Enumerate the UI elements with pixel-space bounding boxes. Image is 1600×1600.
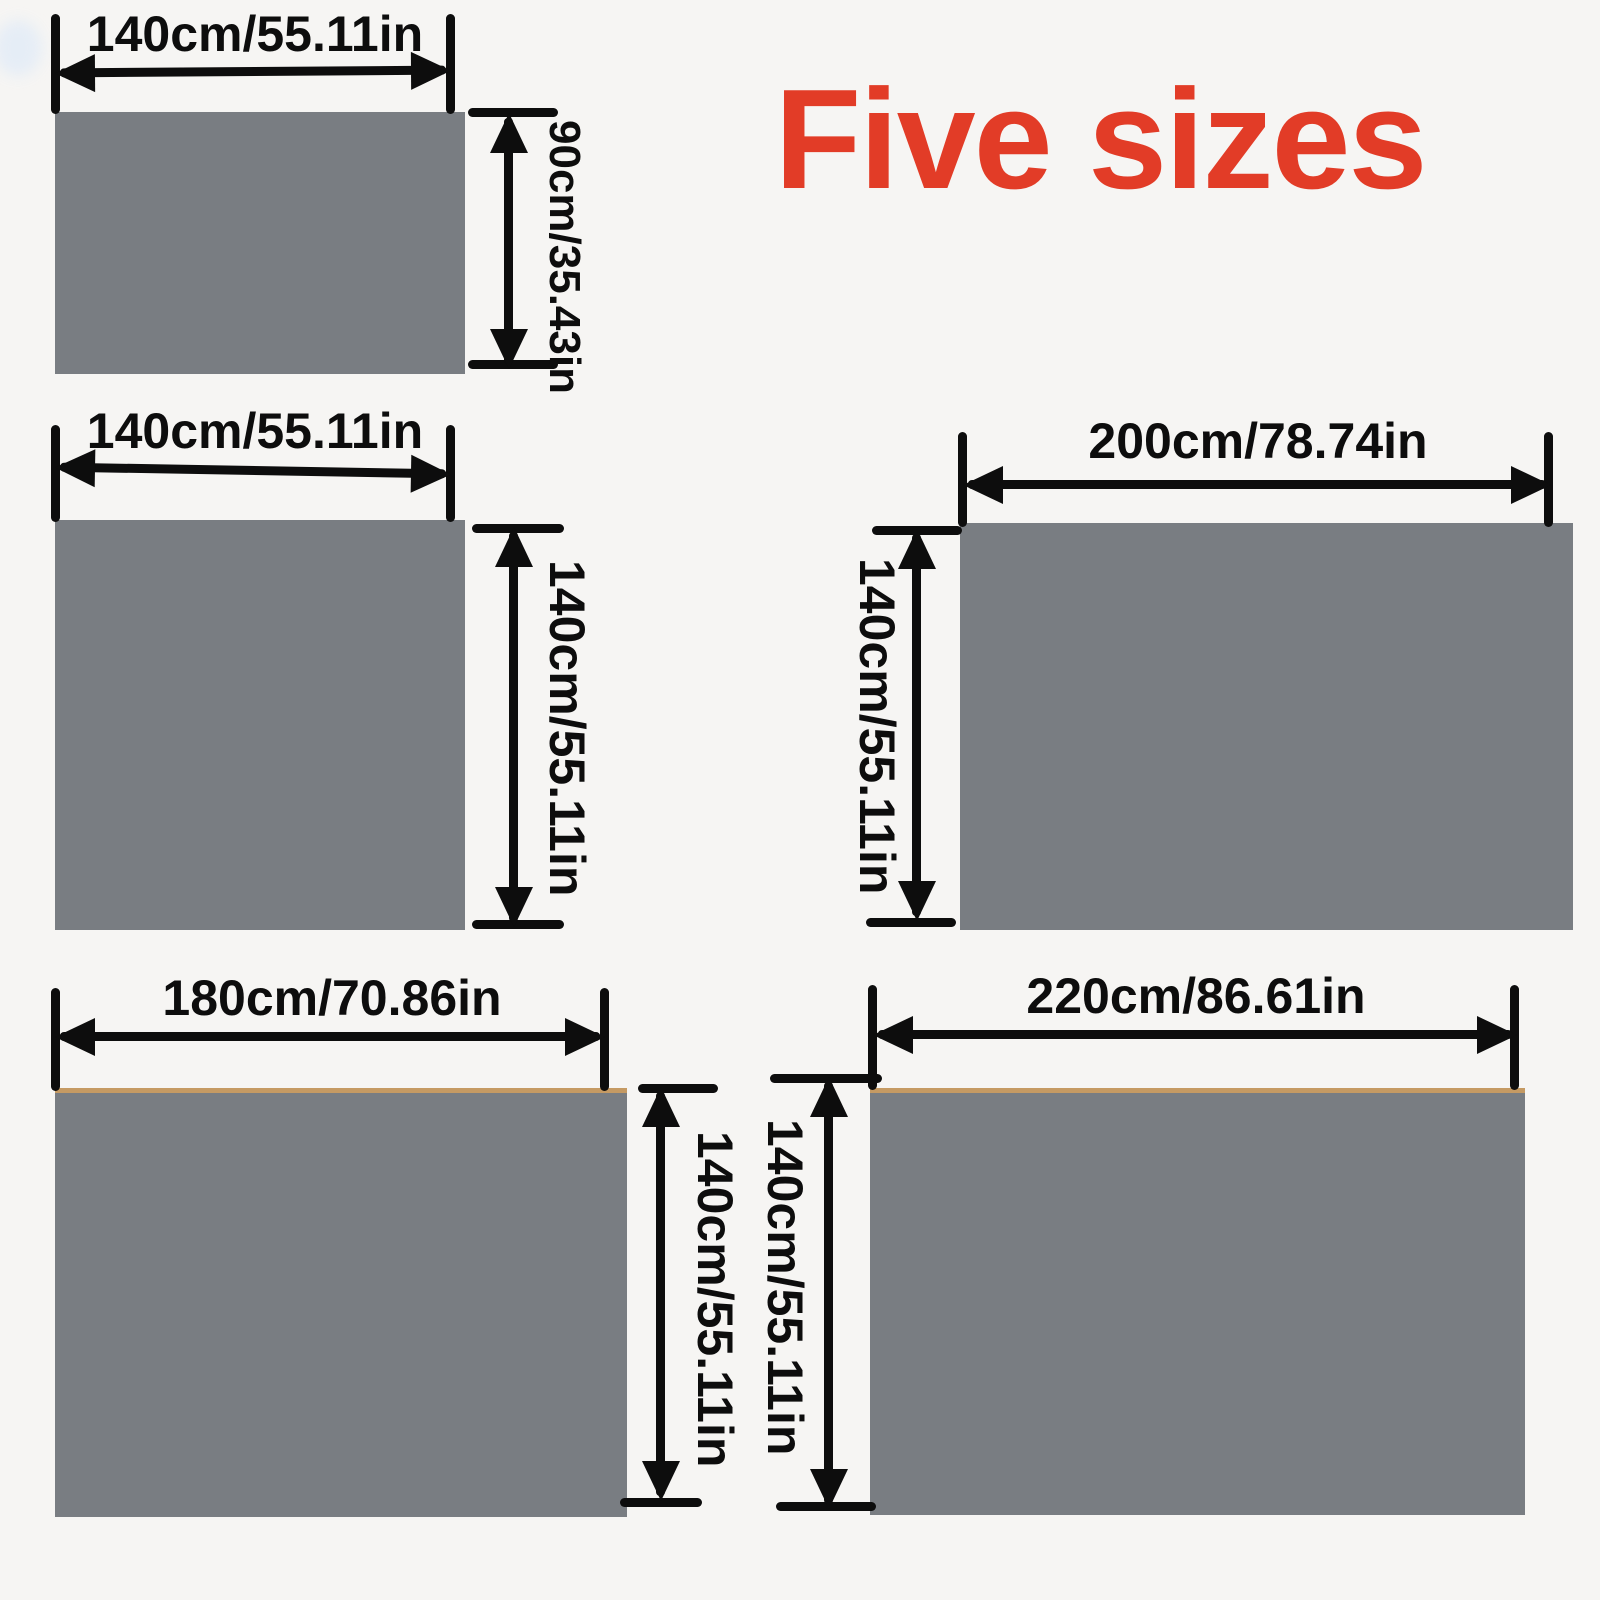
fabric-swatch	[960, 523, 1573, 930]
width-dimension-arrow	[968, 480, 1546, 489]
width-dimension-arrow	[60, 66, 446, 78]
height-dimension-label: 140cm/55.11in	[840, 545, 902, 907]
width-dimension-arrow	[60, 463, 446, 479]
fabric-swatch	[55, 112, 465, 374]
width-dimension-label: 140cm/55.11in	[60, 405, 450, 458]
arrowhead-down-icon	[495, 887, 533, 927]
height-dimension-label: 140cm/55.11in	[530, 550, 592, 906]
arrowhead-right-icon	[411, 454, 452, 493]
arrowhead-down-icon	[642, 1461, 680, 1501]
height-dimension-arrow	[504, 118, 513, 364]
fabric-swatch	[870, 1088, 1525, 1515]
height-dimension-arrow	[656, 1092, 665, 1496]
height-dimension-label: 90cm/35.43in	[524, 120, 586, 364]
width-dimension-arrow	[878, 1030, 1512, 1039]
height-dimension-label: 140cm/55.11in	[748, 1095, 810, 1480]
fabric-swatch	[55, 520, 465, 930]
width-dimension-label: 140cm/55.11in	[60, 8, 450, 61]
arrowhead-up-icon	[495, 527, 533, 567]
trim-edge	[55, 1088, 627, 1093]
width-dimension-label: 220cm/86.61in	[878, 970, 1514, 1023]
width-dimension-arrow	[60, 1032, 600, 1041]
page-title: Five sizes	[740, 62, 1460, 218]
arrowhead-up-icon	[490, 113, 528, 153]
height-dimension-arrow	[824, 1082, 833, 1504]
fabric-swatch	[55, 1088, 627, 1517]
height-dimension-arrow	[912, 534, 921, 916]
width-dimension-label: 200cm/78.74in	[968, 415, 1548, 468]
arrowhead-right-icon	[1511, 466, 1551, 504]
trim-edge	[870, 1088, 1525, 1093]
arrowhead-up-icon	[642, 1087, 680, 1127]
arrowhead-left-icon	[963, 466, 1003, 504]
arrowhead-down-icon	[490, 329, 528, 369]
arrowhead-down-icon	[810, 1469, 848, 1509]
width-dimension-label: 180cm/70.86in	[60, 972, 604, 1025]
background-smudge	[0, 20, 42, 76]
height-dimension-arrow	[509, 532, 518, 922]
size-chart-canvas: Five sizes 140cm/55.11in 90cm/35.43in 14…	[0, 0, 1600, 1600]
height-dimension-label: 140cm/55.11in	[678, 1108, 740, 1490]
arrowhead-up-icon	[810, 1077, 848, 1117]
